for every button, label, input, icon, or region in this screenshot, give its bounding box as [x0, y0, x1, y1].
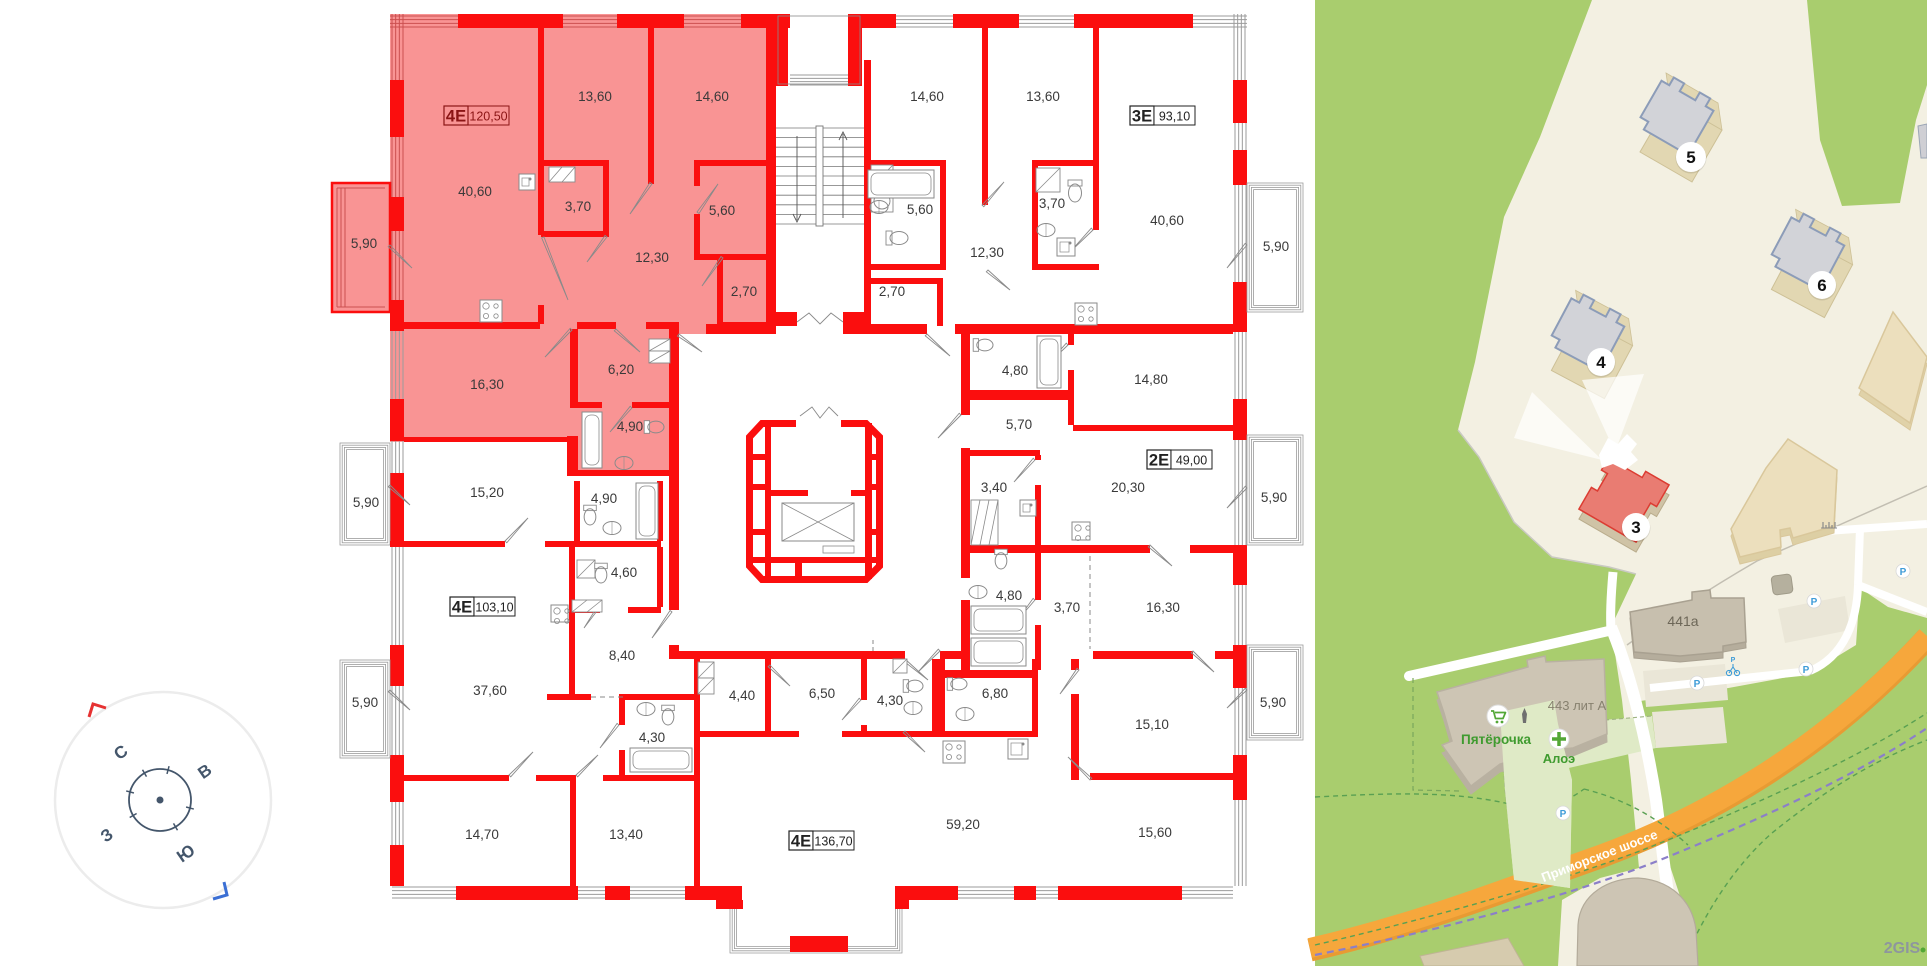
svg-text:15,60: 15,60 — [1138, 825, 1172, 840]
svg-text:14,60: 14,60 — [695, 89, 729, 104]
svg-text:120,50: 120,50 — [469, 110, 507, 124]
svg-text:12,30: 12,30 — [970, 245, 1004, 260]
svg-text:5: 5 — [1686, 148, 1695, 167]
svg-text:15,20: 15,20 — [470, 485, 504, 500]
svg-text:4,90: 4,90 — [591, 491, 617, 506]
svg-text:441а: 441а — [1667, 613, 1698, 629]
svg-text:P: P — [1560, 809, 1567, 820]
svg-text:16,30: 16,30 — [470, 377, 504, 392]
svg-text:5,90: 5,90 — [351, 236, 377, 251]
svg-text:136,70: 136,70 — [814, 835, 852, 849]
svg-text:16,30: 16,30 — [1146, 600, 1180, 615]
svg-text:15,10: 15,10 — [1135, 717, 1169, 732]
svg-text:Алоэ: Алоэ — [1543, 751, 1575, 766]
svg-text:Пятёрочка: Пятёрочка — [1461, 732, 1531, 747]
svg-text:6,20: 6,20 — [608, 362, 634, 377]
svg-text:4,30: 4,30 — [639, 730, 665, 745]
svg-text:14,80: 14,80 — [1134, 372, 1168, 387]
svg-text:14,60: 14,60 — [910, 89, 944, 104]
svg-text:59,20: 59,20 — [946, 817, 980, 832]
svg-text:5,90: 5,90 — [353, 495, 379, 510]
svg-text:P: P — [1731, 657, 1736, 664]
svg-text:2,70: 2,70 — [879, 284, 905, 299]
svg-text:3,40: 3,40 — [981, 480, 1007, 495]
svg-text:93,10: 93,10 — [1159, 110, 1190, 124]
svg-text:13,40: 13,40 — [609, 827, 643, 842]
svg-text:4,90: 4,90 — [617, 419, 643, 434]
svg-text:13,60: 13,60 — [578, 89, 612, 104]
svg-text:6,50: 6,50 — [809, 686, 835, 701]
svg-text:103,10: 103,10 — [475, 601, 513, 615]
svg-text:49,00: 49,00 — [1176, 454, 1207, 468]
svg-text:40,60: 40,60 — [458, 184, 492, 199]
svg-text:5,90: 5,90 — [1260, 695, 1286, 710]
svg-text:4,40: 4,40 — [729, 688, 755, 703]
svg-text:4Е: 4Е — [452, 599, 472, 617]
svg-text:8,40: 8,40 — [609, 648, 635, 663]
svg-text:5,60: 5,60 — [709, 203, 735, 218]
svg-text:4Е: 4Е — [446, 108, 466, 126]
svg-text:13,60: 13,60 — [1026, 89, 1060, 104]
svg-text:3: 3 — [1631, 518, 1640, 537]
svg-text:4,80: 4,80 — [1002, 363, 1028, 378]
svg-text:4,30: 4,30 — [877, 693, 903, 708]
svg-text:20,30: 20,30 — [1111, 480, 1145, 495]
svg-text:3,70: 3,70 — [1054, 600, 1080, 615]
svg-text:3,70: 3,70 — [565, 199, 591, 214]
svg-text:4: 4 — [1596, 353, 1606, 372]
svg-text:4,60: 4,60 — [611, 565, 637, 580]
svg-text:6: 6 — [1817, 276, 1826, 295]
svg-text:P: P — [1900, 567, 1907, 578]
svg-text:14,70: 14,70 — [465, 827, 499, 842]
svg-text:5,70: 5,70 — [1006, 417, 1032, 432]
svg-text:2,70: 2,70 — [731, 284, 757, 299]
svg-text:P: P — [1803, 665, 1810, 676]
svg-text:P: P — [1811, 597, 1818, 608]
svg-text:2GIS: 2GIS — [1884, 940, 1921, 957]
svg-text:4,80: 4,80 — [996, 588, 1022, 603]
svg-text:5,60: 5,60 — [907, 202, 933, 217]
svg-text:4Е: 4Е — [791, 833, 811, 851]
svg-text:5,90: 5,90 — [1263, 239, 1289, 254]
svg-text:P: P — [1694, 679, 1701, 690]
svg-text:6,80: 6,80 — [982, 686, 1008, 701]
svg-text:443 лит А: 443 лит А — [1548, 698, 1607, 713]
svg-text:5,90: 5,90 — [1261, 490, 1287, 505]
svg-text:2Е: 2Е — [1149, 452, 1169, 470]
svg-text:3,70: 3,70 — [1039, 196, 1065, 211]
svg-text:5,90: 5,90 — [352, 695, 378, 710]
svg-text:37,60: 37,60 — [473, 683, 507, 698]
svg-text:3Е: 3Е — [1132, 108, 1152, 126]
svg-text:12,30: 12,30 — [635, 250, 669, 265]
svg-text:40,60: 40,60 — [1150, 213, 1184, 228]
